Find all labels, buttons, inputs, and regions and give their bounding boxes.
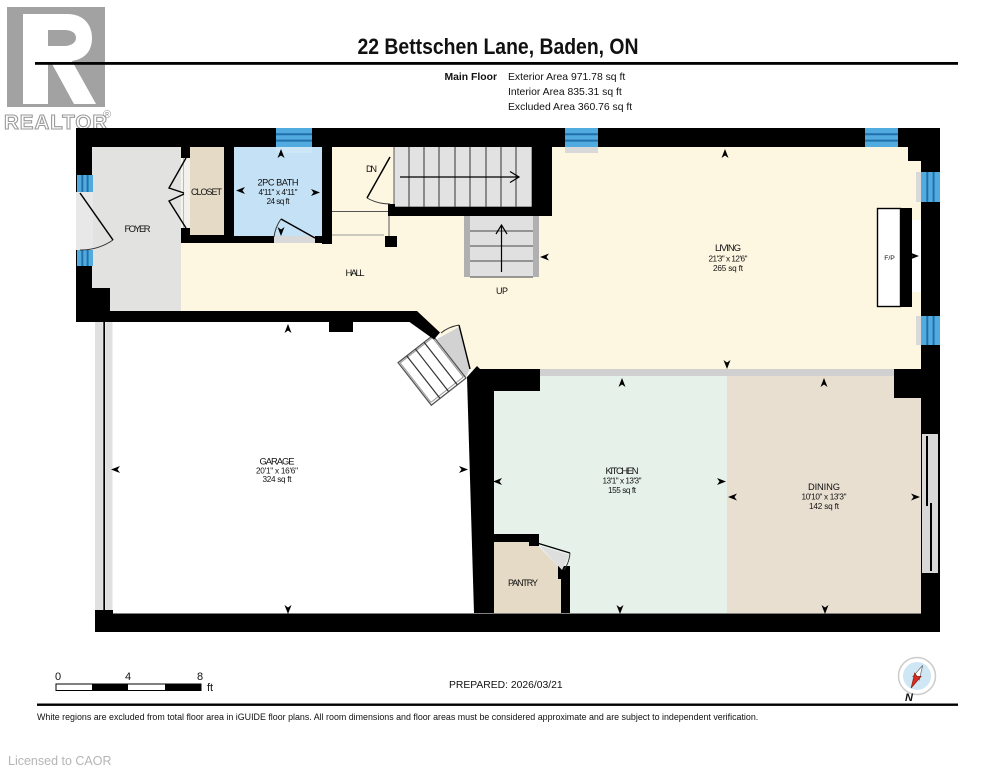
svg-text:KITCHEN: KITCHEN [606, 465, 639, 476]
svg-text:Exterior Area 971.78 sq ft: Exterior Area 971.78 sq ft [508, 72, 625, 83]
svg-text:13'1" x 13'3": 13'1" x 13'3" [603, 477, 642, 486]
svg-text:Main Floor: Main Floor [444, 72, 497, 83]
svg-text:22 Bettschen Lane, Baden, ON: 22 Bettschen Lane, Baden, ON [358, 34, 639, 59]
svg-text:8: 8 [197, 671, 203, 683]
svg-text:®: ® [103, 109, 111, 121]
svg-text:4'11" x 4'11": 4'11" x 4'11" [259, 188, 298, 197]
svg-text:4: 4 [125, 671, 131, 683]
svg-text:UP: UP [496, 286, 508, 296]
svg-text:HALL: HALL [346, 267, 365, 278]
svg-text:Licensed to CAOR: Licensed to CAOR [8, 754, 112, 768]
svg-text:PREPARED: 2026/03/21: PREPARED: 2026/03/21 [449, 680, 563, 691]
svg-text:Interior Area 835.31 sq ft: Interior Area 835.31 sq ft [508, 87, 622, 98]
svg-text:DN: DN [366, 164, 377, 174]
svg-text:PANTRY: PANTRY [508, 578, 538, 588]
svg-text:155 sq ft: 155 sq ft [608, 486, 637, 495]
svg-text:10'10" x 13'3": 10'10" x 13'3" [802, 493, 847, 502]
svg-text:2PC BATH: 2PC BATH [258, 178, 299, 188]
svg-text:DINING: DINING [808, 481, 840, 492]
svg-text:LIVING: LIVING [715, 242, 741, 253]
svg-text:0: 0 [55, 671, 61, 683]
svg-text:24 sq ft: 24 sq ft [267, 197, 291, 206]
svg-text:F/P: F/P [884, 255, 895, 262]
svg-text:ft: ft [207, 682, 213, 694]
svg-text:FOYER: FOYER [125, 223, 151, 234]
svg-text:324 sq ft: 324 sq ft [263, 475, 293, 484]
svg-text:GARAGE: GARAGE [260, 456, 295, 467]
svg-text:265 sq ft: 265 sq ft [713, 264, 744, 273]
svg-text:Excluded Area 360.76 sq ft: Excluded Area 360.76 sq ft [508, 102, 632, 113]
svg-text:N: N [905, 692, 914, 704]
svg-text:142 sq ft: 142 sq ft [809, 502, 840, 511]
svg-text:White regions are excluded fro: White regions are excluded from total fl… [37, 712, 758, 722]
svg-text:21'3" x 12'6": 21'3" x 12'6" [709, 255, 748, 264]
svg-text:CLOSET: CLOSET [191, 187, 223, 197]
